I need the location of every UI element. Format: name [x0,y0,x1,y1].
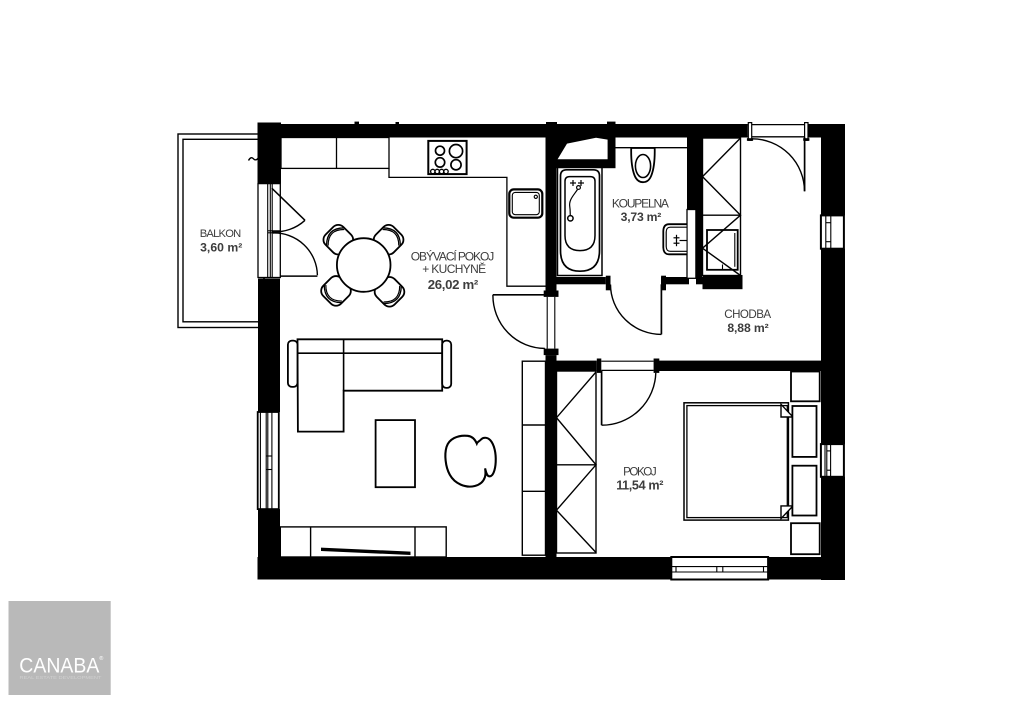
svg-text:3,73 m²: 3,73 m² [621,210,662,224]
svg-text:CHODBA: CHODBA [724,308,771,321]
svg-text:8,88 m²: 8,88 m² [727,321,768,335]
svg-text:BALKON: BALKON [200,228,242,240]
svg-text:3,60 m²: 3,60 m² [200,241,242,255]
svg-text:®: ® [99,655,103,662]
svg-text:26,02 m²: 26,02 m² [428,277,479,292]
svg-text:REAL ESTATE DEVELOPMENT: REAL ESTATE DEVELOPMENT [20,675,102,680]
svg-text:11,54 m²: 11,54 m² [616,478,663,492]
svg-text:POKOJ: POKOJ [623,465,657,478]
svg-text:KOUPELNA: KOUPELNA [612,197,669,211]
svg-text:+ KUCHYNĚ: + KUCHYNĚ [422,261,486,276]
